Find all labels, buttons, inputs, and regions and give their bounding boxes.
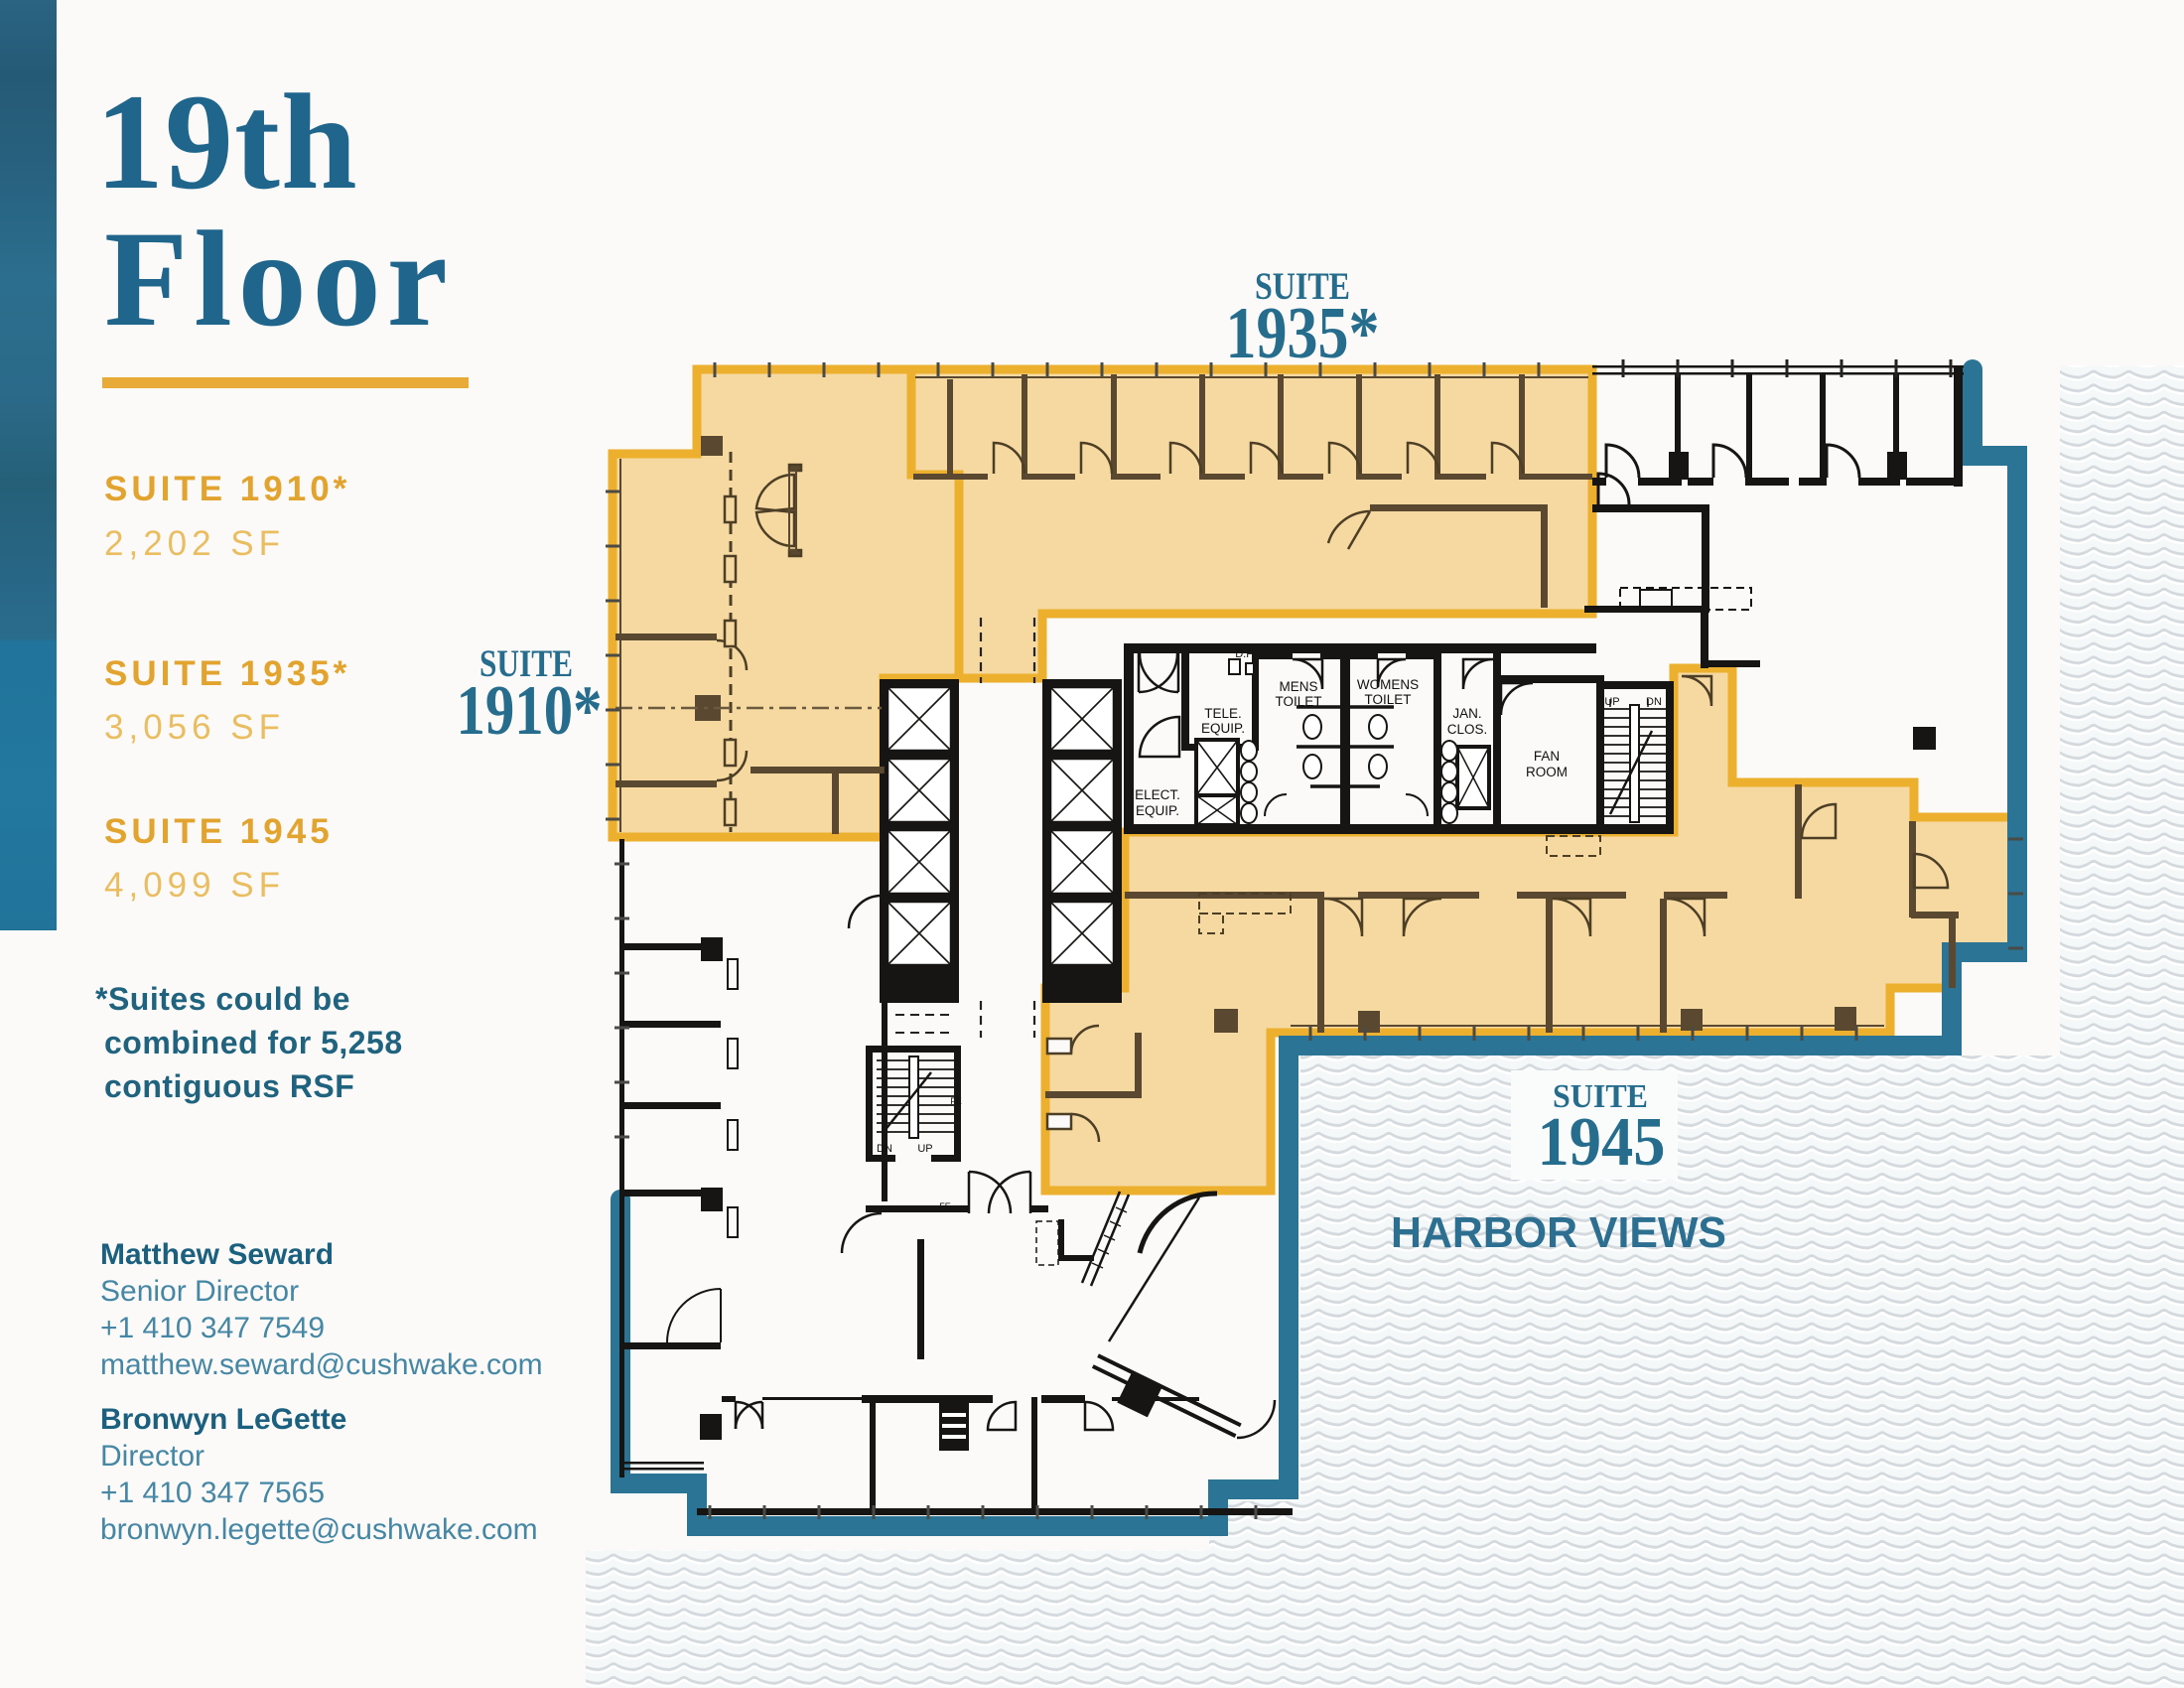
svg-text:UP: UP <box>917 1143 932 1155</box>
svg-text:FE: FE <box>939 1201 951 1211</box>
svg-text:MENS: MENS <box>1279 679 1317 694</box>
svg-text:D.F.: D.F. <box>1235 648 1255 660</box>
svg-text:JAN.: JAN. <box>1452 706 1481 721</box>
svg-text:WOMENS: WOMENS <box>1357 677 1419 692</box>
svg-text:TELE.: TELE. <box>1204 706 1242 721</box>
svg-text:1935*: 1935* <box>1226 293 1380 374</box>
svg-text:1945: 1945 <box>1538 1104 1666 1181</box>
svg-text:FE: FE <box>950 1096 962 1106</box>
svg-text:TOILET: TOILET <box>1275 694 1321 709</box>
svg-text:UP: UP <box>1604 696 1619 708</box>
svg-text:FAN: FAN <box>1534 749 1560 764</box>
svg-text:TOILET: TOILET <box>1364 692 1411 707</box>
svg-text:EQUIP.: EQUIP. <box>1136 803 1179 818</box>
svg-text:HARBOR VIEWS: HARBOR VIEWS <box>1391 1208 1726 1257</box>
svg-text:CLOS.: CLOS. <box>1447 722 1488 737</box>
svg-text:EQUIP.: EQUIP. <box>1201 721 1245 736</box>
svg-text:ELECT.: ELECT. <box>1135 787 1180 802</box>
svg-text:DN: DN <box>877 1143 892 1155</box>
svg-text:DN: DN <box>1646 696 1662 708</box>
svg-text:ROOM: ROOM <box>1526 765 1568 779</box>
svg-text:1910*: 1910* <box>457 672 603 750</box>
